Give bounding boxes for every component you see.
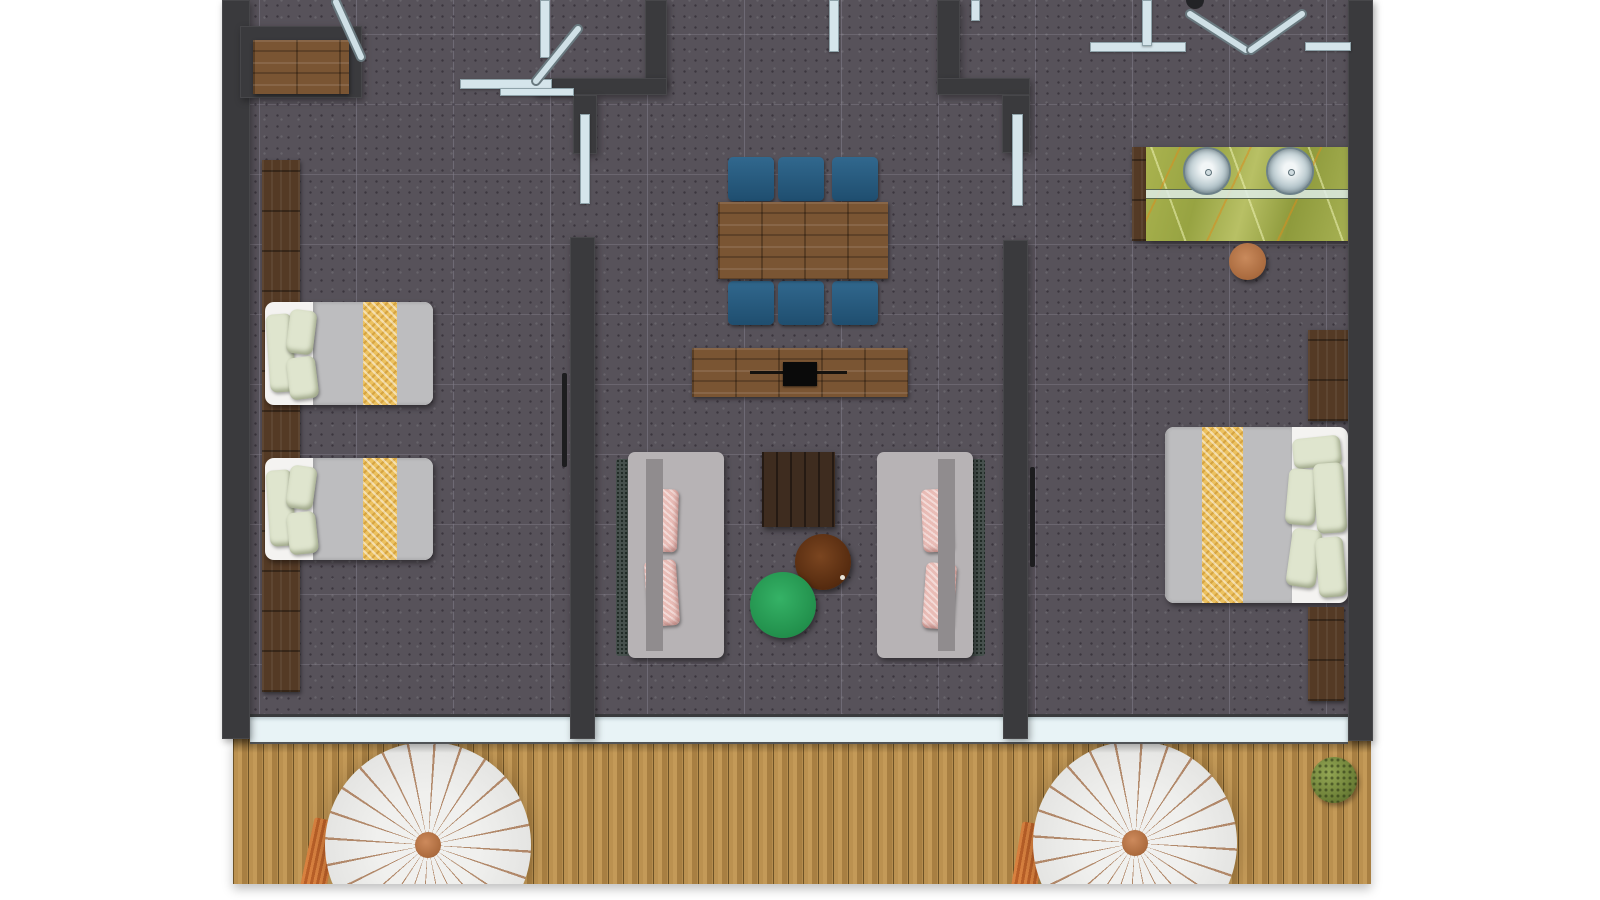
dining-chair-top-1 bbox=[728, 157, 774, 201]
umbrella-right bbox=[1033, 741, 1237, 884]
outer-wall-right bbox=[1348, 0, 1373, 741]
bed1-gold-runner bbox=[363, 302, 397, 405]
sofa-right bbox=[877, 452, 973, 658]
entry-cabinet bbox=[253, 40, 349, 94]
double-bed-gold-runner bbox=[1202, 427, 1243, 603]
hall-partition-vertical bbox=[937, 0, 960, 81]
bedroom-left-door-glass bbox=[580, 114, 590, 204]
sofa-right-seam bbox=[938, 459, 955, 651]
plant-bush bbox=[1311, 757, 1357, 803]
dining-chair-top-3 bbox=[832, 157, 878, 201]
sliding-door-handle-left bbox=[562, 373, 567, 467]
dining-table bbox=[718, 202, 888, 279]
umbrella-left bbox=[325, 742, 531, 884]
bed1-pillow-bottom bbox=[286, 355, 320, 400]
double-bed-pillow-5 bbox=[1314, 536, 1347, 598]
shower-glass-right bbox=[1305, 42, 1351, 51]
double-bed-pillow-3 bbox=[1313, 462, 1348, 534]
twin-bed-1 bbox=[265, 302, 433, 405]
coffee-table bbox=[762, 452, 835, 527]
entry-sliding-door-2 bbox=[500, 88, 574, 96]
dining-chair-bottom-3 bbox=[832, 281, 878, 325]
entry-partition-vertical bbox=[645, 0, 667, 86]
sofa-left bbox=[628, 452, 724, 658]
glass-facade-band bbox=[250, 714, 1348, 744]
green-pouf bbox=[750, 572, 816, 638]
tv bbox=[783, 362, 817, 386]
dining-chair-top-2 bbox=[778, 157, 824, 201]
divider-wall-right bbox=[1003, 240, 1028, 739]
double-bed bbox=[1165, 427, 1348, 603]
dining-window-mullion bbox=[829, 0, 839, 52]
sliding-door-handle-right bbox=[1030, 467, 1035, 567]
dining-chair-bottom-1 bbox=[728, 281, 774, 325]
vanity-stool bbox=[1229, 243, 1266, 280]
bed1-pillow-top bbox=[285, 309, 317, 356]
shower-glass-left bbox=[1090, 42, 1186, 52]
sofa-left-seam bbox=[646, 459, 663, 651]
hall-glass-stub bbox=[971, 0, 980, 21]
sink-right bbox=[1266, 147, 1314, 195]
twin-bed-2 bbox=[265, 458, 433, 560]
dining-chair-bottom-2 bbox=[778, 281, 824, 325]
divider-wall-left bbox=[570, 237, 595, 739]
bedroom-right-door-glass bbox=[1012, 114, 1023, 206]
bed2-gold-runner bbox=[363, 458, 397, 560]
vanity-glass-shelf bbox=[1146, 189, 1348, 199]
terrace-deck bbox=[233, 739, 1371, 884]
nightstand-bottom bbox=[1308, 607, 1344, 701]
nightstand-top bbox=[1308, 330, 1348, 421]
entry-glass-panel bbox=[540, 0, 550, 58]
hall-partition-horizontal bbox=[937, 78, 1030, 95]
shower-glass-vertical bbox=[1142, 0, 1152, 46]
sink-left bbox=[1183, 147, 1231, 195]
vanity-side-panel bbox=[1132, 147, 1146, 241]
bed2-pillow-bottom bbox=[286, 511, 319, 556]
outer-wall-left bbox=[222, 0, 250, 739]
wardrobe-panel bbox=[262, 160, 300, 692]
floor-plan-canvas bbox=[0, 0, 1600, 900]
